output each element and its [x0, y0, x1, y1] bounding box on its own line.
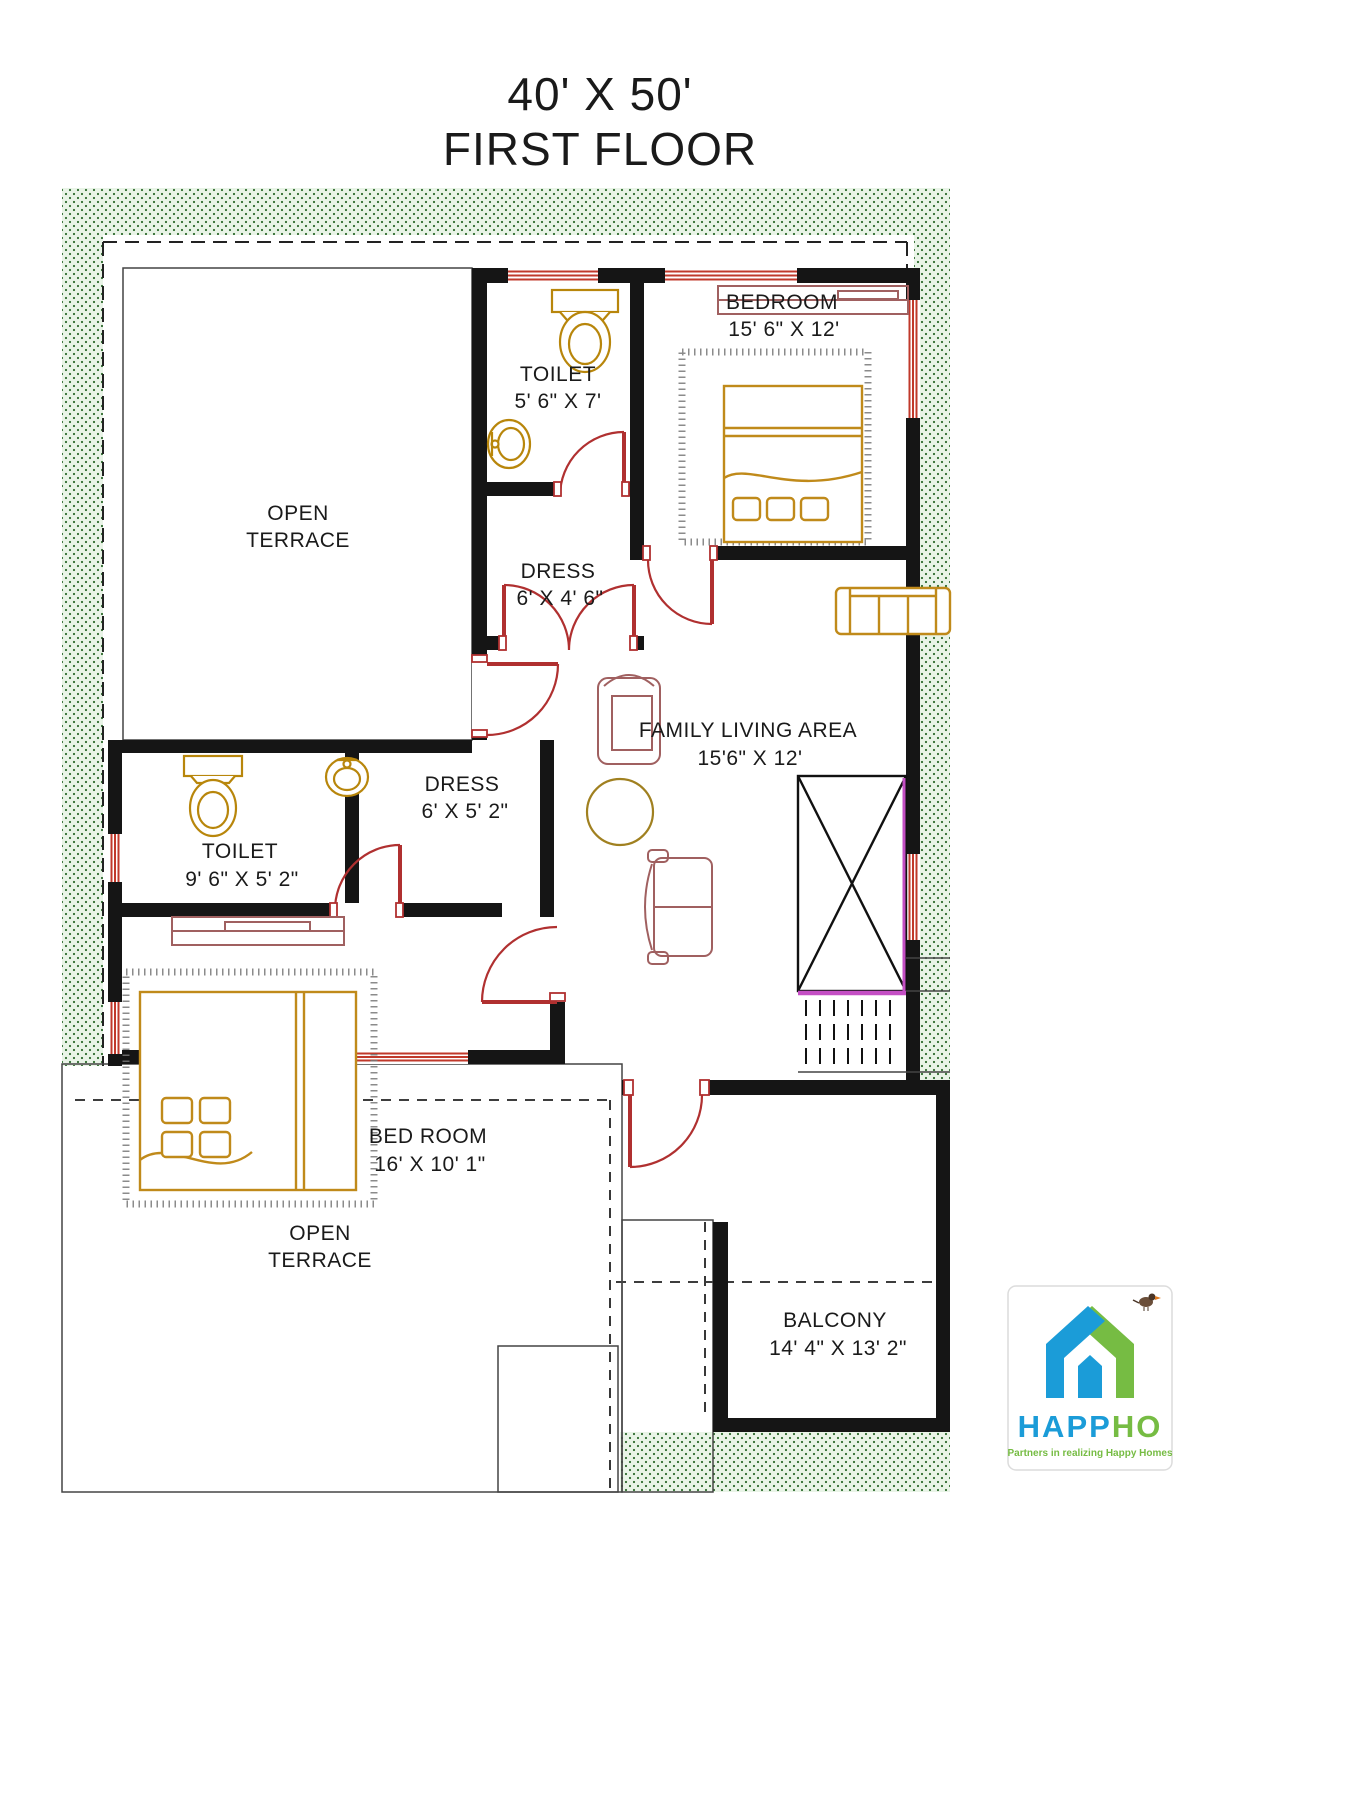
window-toilet-left	[108, 834, 122, 882]
plan-title: 40' X 50' FIRST FLOOR	[443, 68, 757, 175]
label-bedroom-bottom-dims: 16' X 10' 1"	[374, 1153, 485, 1176]
label-bedroom-top-dims: 15' 6" X 12'	[728, 318, 839, 341]
label-terrace-bottom-1: OPEN	[289, 1222, 351, 1245]
window-living-right	[906, 854, 920, 940]
brand-part-blue: HAPP	[1018, 1409, 1112, 1444]
door-bedroom-bottom	[482, 927, 565, 1002]
wardrobe-icon	[172, 917, 344, 945]
label-terrace-top-1: OPEN	[267, 502, 329, 525]
wc-icon	[552, 290, 618, 372]
label-dress-mid-dims: 6' X 5' 2"	[421, 800, 508, 823]
happho-logo: HAPPHO Partners in realizing Happy Homes	[1007, 1286, 1172, 1470]
label-toilet-top: TOILET	[520, 363, 596, 386]
terrace-notch	[498, 1346, 618, 1492]
label-dress-mid: DRESS	[425, 773, 500, 796]
label-toilet-top-dims: 5' 6" X 7'	[514, 390, 601, 413]
label-family-living: FAMILY LIVING AREA	[639, 719, 857, 742]
sofa-icon	[645, 850, 712, 964]
wc-icon	[184, 756, 242, 836]
toilet-left-fixtures	[184, 756, 368, 836]
round-table-icon	[587, 779, 653, 845]
bed-icon	[140, 992, 356, 1190]
window-bedroom-right	[906, 300, 920, 418]
window-bedroom-left	[108, 1002, 122, 1054]
happho-brand: HAPPHO	[1018, 1409, 1163, 1444]
label-dress-top: DRESS	[521, 560, 596, 583]
title-line2: FIRST FLOOR	[443, 123, 757, 175]
sofa-bench-icon	[836, 588, 950, 634]
happho-tagline: Partners in realizing Happy Homes	[1007, 1448, 1172, 1459]
green-border	[62, 188, 950, 1492]
title-line1: 40' X 50'	[507, 68, 692, 120]
window-bedroom-top	[665, 268, 797, 283]
label-balcony: BALCONY	[783, 1309, 887, 1332]
label-family-living-dims: 15'6" X 12'	[697, 747, 802, 770]
label-toilet-left-dims: 9' 6" X 5' 2"	[185, 868, 299, 891]
label-terrace-bottom-2: TERRACE	[268, 1249, 372, 1272]
floor-plan-canvas: 40' X 50' FIRST FLOOR	[0, 0, 1366, 1800]
label-dress-top-dims: 6' X 4' 6"	[516, 587, 603, 610]
floor-plan-page: 40' X 50' FIRST FLOOR	[0, 0, 1366, 1800]
window-toilet-top	[508, 268, 598, 283]
washbasin-icon	[326, 758, 368, 796]
stair-treads	[806, 1000, 890, 1064]
washbasin-icon	[488, 420, 530, 468]
brand-part-green: HO	[1112, 1409, 1163, 1444]
label-terrace-top-2: TERRACE	[246, 529, 350, 552]
label-toilet-left: TOILET	[202, 840, 278, 863]
label-bedroom-bottom: BED ROOM	[369, 1125, 487, 1148]
bed-icon	[724, 386, 862, 542]
label-bedroom-top: BEDROOM	[726, 291, 838, 314]
label-balcony-dims: 14' 4" X 13' 2"	[769, 1337, 907, 1360]
bedroom-bottom-furniture	[126, 917, 374, 1204]
